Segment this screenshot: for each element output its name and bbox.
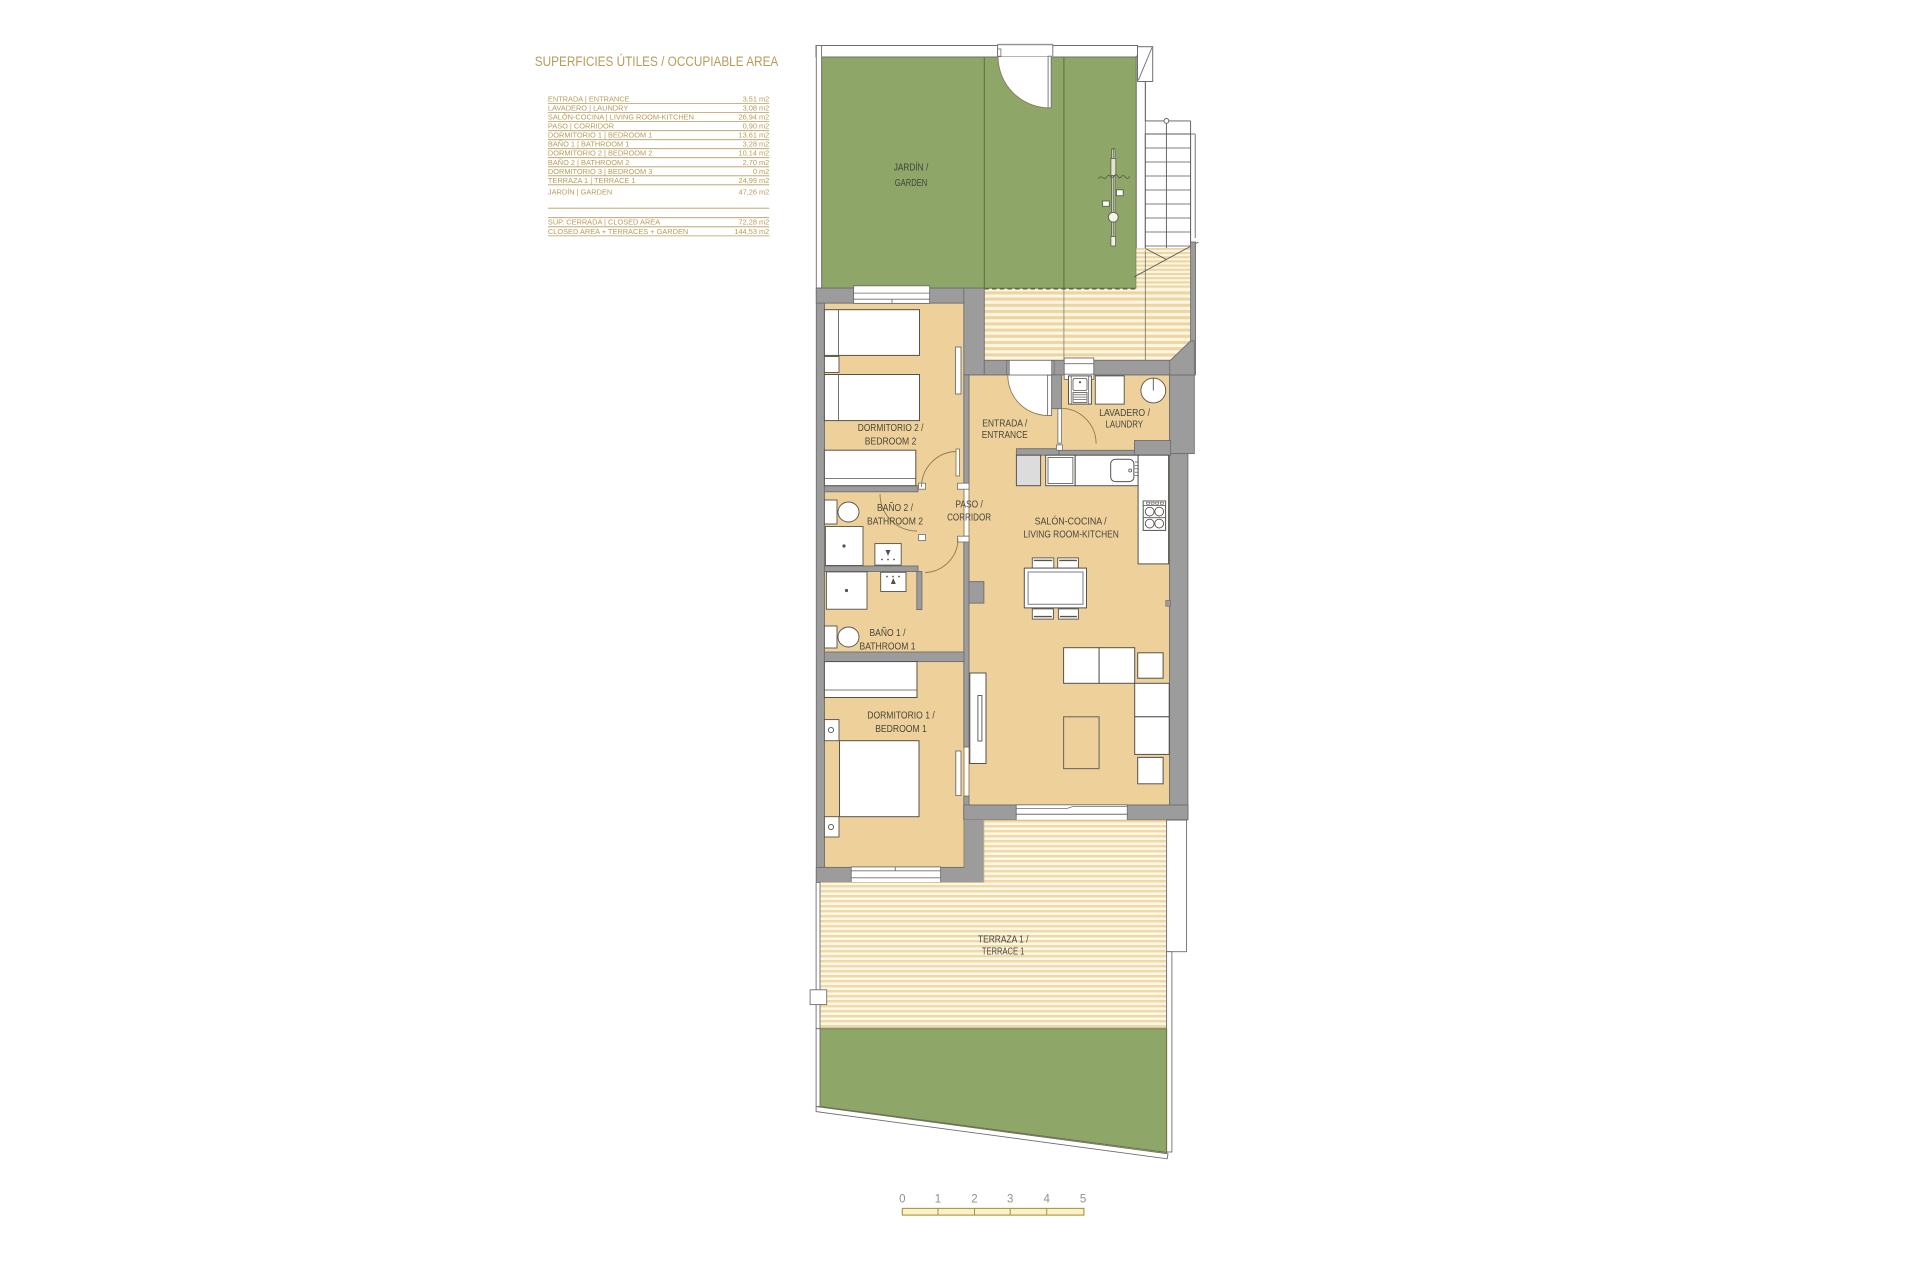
svg-text:47,26 m2: 47,26 m2 <box>738 187 769 196</box>
svg-text:CLOSED AREA + TERRACES + GARDE: CLOSED AREA + TERRACES + GARDEN <box>548 227 688 236</box>
svg-text:24,99 m2: 24,99 m2 <box>738 176 769 185</box>
svg-text:3: 3 <box>1007 1194 1013 1206</box>
svg-text:10,14 m2: 10,14 m2 <box>738 149 769 158</box>
svg-text:0: 0 <box>899 1194 905 1206</box>
svg-text:BATHROOM 2: BATHROOM 2 <box>867 516 923 527</box>
svg-text:BATHROOM 1: BATHROOM 1 <box>860 641 916 652</box>
svg-text:TERRAZA 1 | TERRACE 1: TERRAZA 1 | TERRACE 1 <box>548 176 636 185</box>
svg-text:PASO /: PASO / <box>955 499 983 510</box>
svg-text:CORRIDOR: CORRIDOR <box>947 512 991 523</box>
svg-text:DORMITORIO 3 | BEDROOM 3: DORMITORIO 3 | BEDROOM 3 <box>548 167 652 176</box>
svg-text:3,08 m2: 3,08 m2 <box>743 104 770 113</box>
svg-text:SUP. CERRADA | CLOSED AREA: SUP. CERRADA | CLOSED AREA <box>548 218 660 227</box>
svg-text:DORMITORIO 2 /: DORMITORIO 2 / <box>858 423 924 434</box>
svg-text:3,28 m2: 3,28 m2 <box>743 140 770 149</box>
svg-text:SUPERFICIES ÚTILES / OCCUPIABL: SUPERFICIES ÚTILES / OCCUPIABLE AREA <box>535 53 779 70</box>
svg-text:BAÑO 2 /: BAÑO 2 / <box>877 501 913 514</box>
svg-text:LAVADERO | LAUNDRY: LAVADERO | LAUNDRY <box>548 104 628 113</box>
svg-text:SALÓN-COCINA | LIVING ROOM-KIT: SALÓN-COCINA | LIVING ROOM-KITCHEN <box>548 113 694 122</box>
svg-text:PASO | CORRIDOR: PASO | CORRIDOR <box>548 122 614 131</box>
svg-text:DORMITORIO 1 | BEDROOM 1: DORMITORIO 1 | BEDROOM 1 <box>548 131 652 140</box>
svg-text:LAVADERO /: LAVADERO / <box>1099 408 1150 419</box>
svg-text:2: 2 <box>971 1194 977 1206</box>
svg-text:3,51 m2: 3,51 m2 <box>743 95 770 104</box>
svg-text:BEDROOM 1: BEDROOM 1 <box>875 724 927 735</box>
svg-text:72,28 m2: 72,28 m2 <box>738 218 769 227</box>
svg-text:TERRACE 1: TERRACE 1 <box>982 946 1025 957</box>
svg-text:ENTRADA /: ENTRADA / <box>982 419 1027 430</box>
svg-text:2,70 m2: 2,70 m2 <box>743 158 770 167</box>
svg-text:5: 5 <box>1080 1194 1086 1206</box>
svg-text:JARDÍN | GARDEN: JARDÍN | GARDEN <box>548 187 612 196</box>
svg-text:LIVING ROOM-KITCHEN: LIVING ROOM-KITCHEN <box>1023 530 1118 541</box>
svg-text:1: 1 <box>935 1194 941 1206</box>
svg-text:BAÑO 1 | BATHROOM 1: BAÑO 1 | BATHROOM 1 <box>548 140 629 149</box>
svg-text:DORMITORIO 1 /: DORMITORIO 1 / <box>867 711 935 722</box>
svg-text:TERRAZA 1 /: TERRAZA 1 / <box>978 934 1029 945</box>
svg-text:144,53 m2: 144,53 m2 <box>734 227 769 236</box>
svg-text:LAUNDRY: LAUNDRY <box>1106 419 1144 430</box>
svg-text:4: 4 <box>1043 1194 1050 1206</box>
svg-text:DORMITORIO 2 | BEDROOM 2: DORMITORIO 2 | BEDROOM 2 <box>548 149 652 158</box>
svg-text:JARDÍN /: JARDÍN / <box>894 161 929 174</box>
svg-text:13,61 m2: 13,61 m2 <box>738 131 769 140</box>
svg-text:ENTRADA | ENTRANCE: ENTRADA | ENTRANCE <box>548 95 630 104</box>
svg-text:26,94 m2: 26,94 m2 <box>738 113 769 122</box>
svg-text:SALÓN-COCINA /: SALÓN-COCINA / <box>1035 514 1107 527</box>
svg-text:0,90 m2: 0,90 m2 <box>743 122 770 131</box>
svg-text:ENTRANCE: ENTRANCE <box>982 430 1028 441</box>
svg-text:BEDROOM 2: BEDROOM 2 <box>865 437 917 448</box>
svg-text:0 m2: 0 m2 <box>753 167 769 176</box>
svg-text:GARDEN: GARDEN <box>895 178 928 189</box>
svg-text:BAÑO 1 /: BAÑO 1 / <box>870 626 906 639</box>
svg-text:BAÑO 2 | BATHROOM 2: BAÑO 2 | BATHROOM 2 <box>548 158 629 167</box>
